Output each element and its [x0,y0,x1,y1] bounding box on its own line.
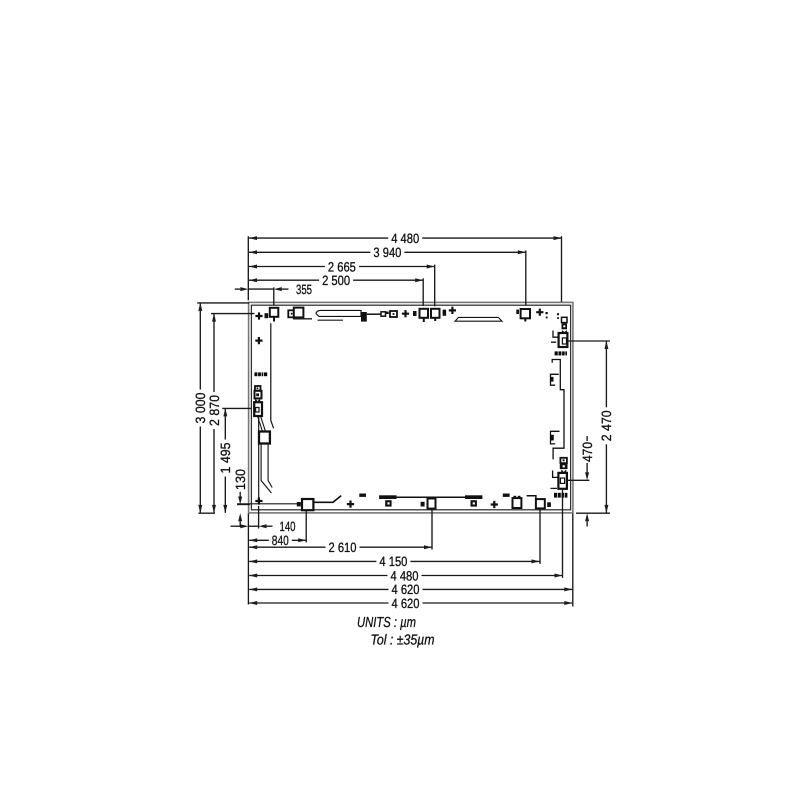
svg-text:4 480: 4 480 [391,568,419,583]
svg-text:355: 355 [296,282,312,297]
svg-text:4 150: 4 150 [379,554,407,569]
svg-text:3 940: 3 940 [373,245,401,260]
svg-text:840: 840 [272,533,289,548]
svg-text:4 480: 4 480 [391,231,419,246]
svg-text:2 470: 2 470 [599,410,614,441]
svg-text:UNITS : µm: UNITS : µm [357,615,416,631]
svg-text:1 495: 1 495 [218,443,233,474]
svg-text:Tol : ±35µm: Tol : ±35µm [371,633,435,649]
svg-text:2 500: 2 500 [322,273,350,288]
svg-text:140: 140 [280,519,296,534]
svg-text:2 610: 2 610 [329,540,357,555]
svg-text:130: 130 [233,469,248,490]
svg-text:4 620: 4 620 [392,596,420,611]
svg-text:470: 470 [580,442,595,462]
svg-text:2 870: 2 870 [207,395,222,426]
